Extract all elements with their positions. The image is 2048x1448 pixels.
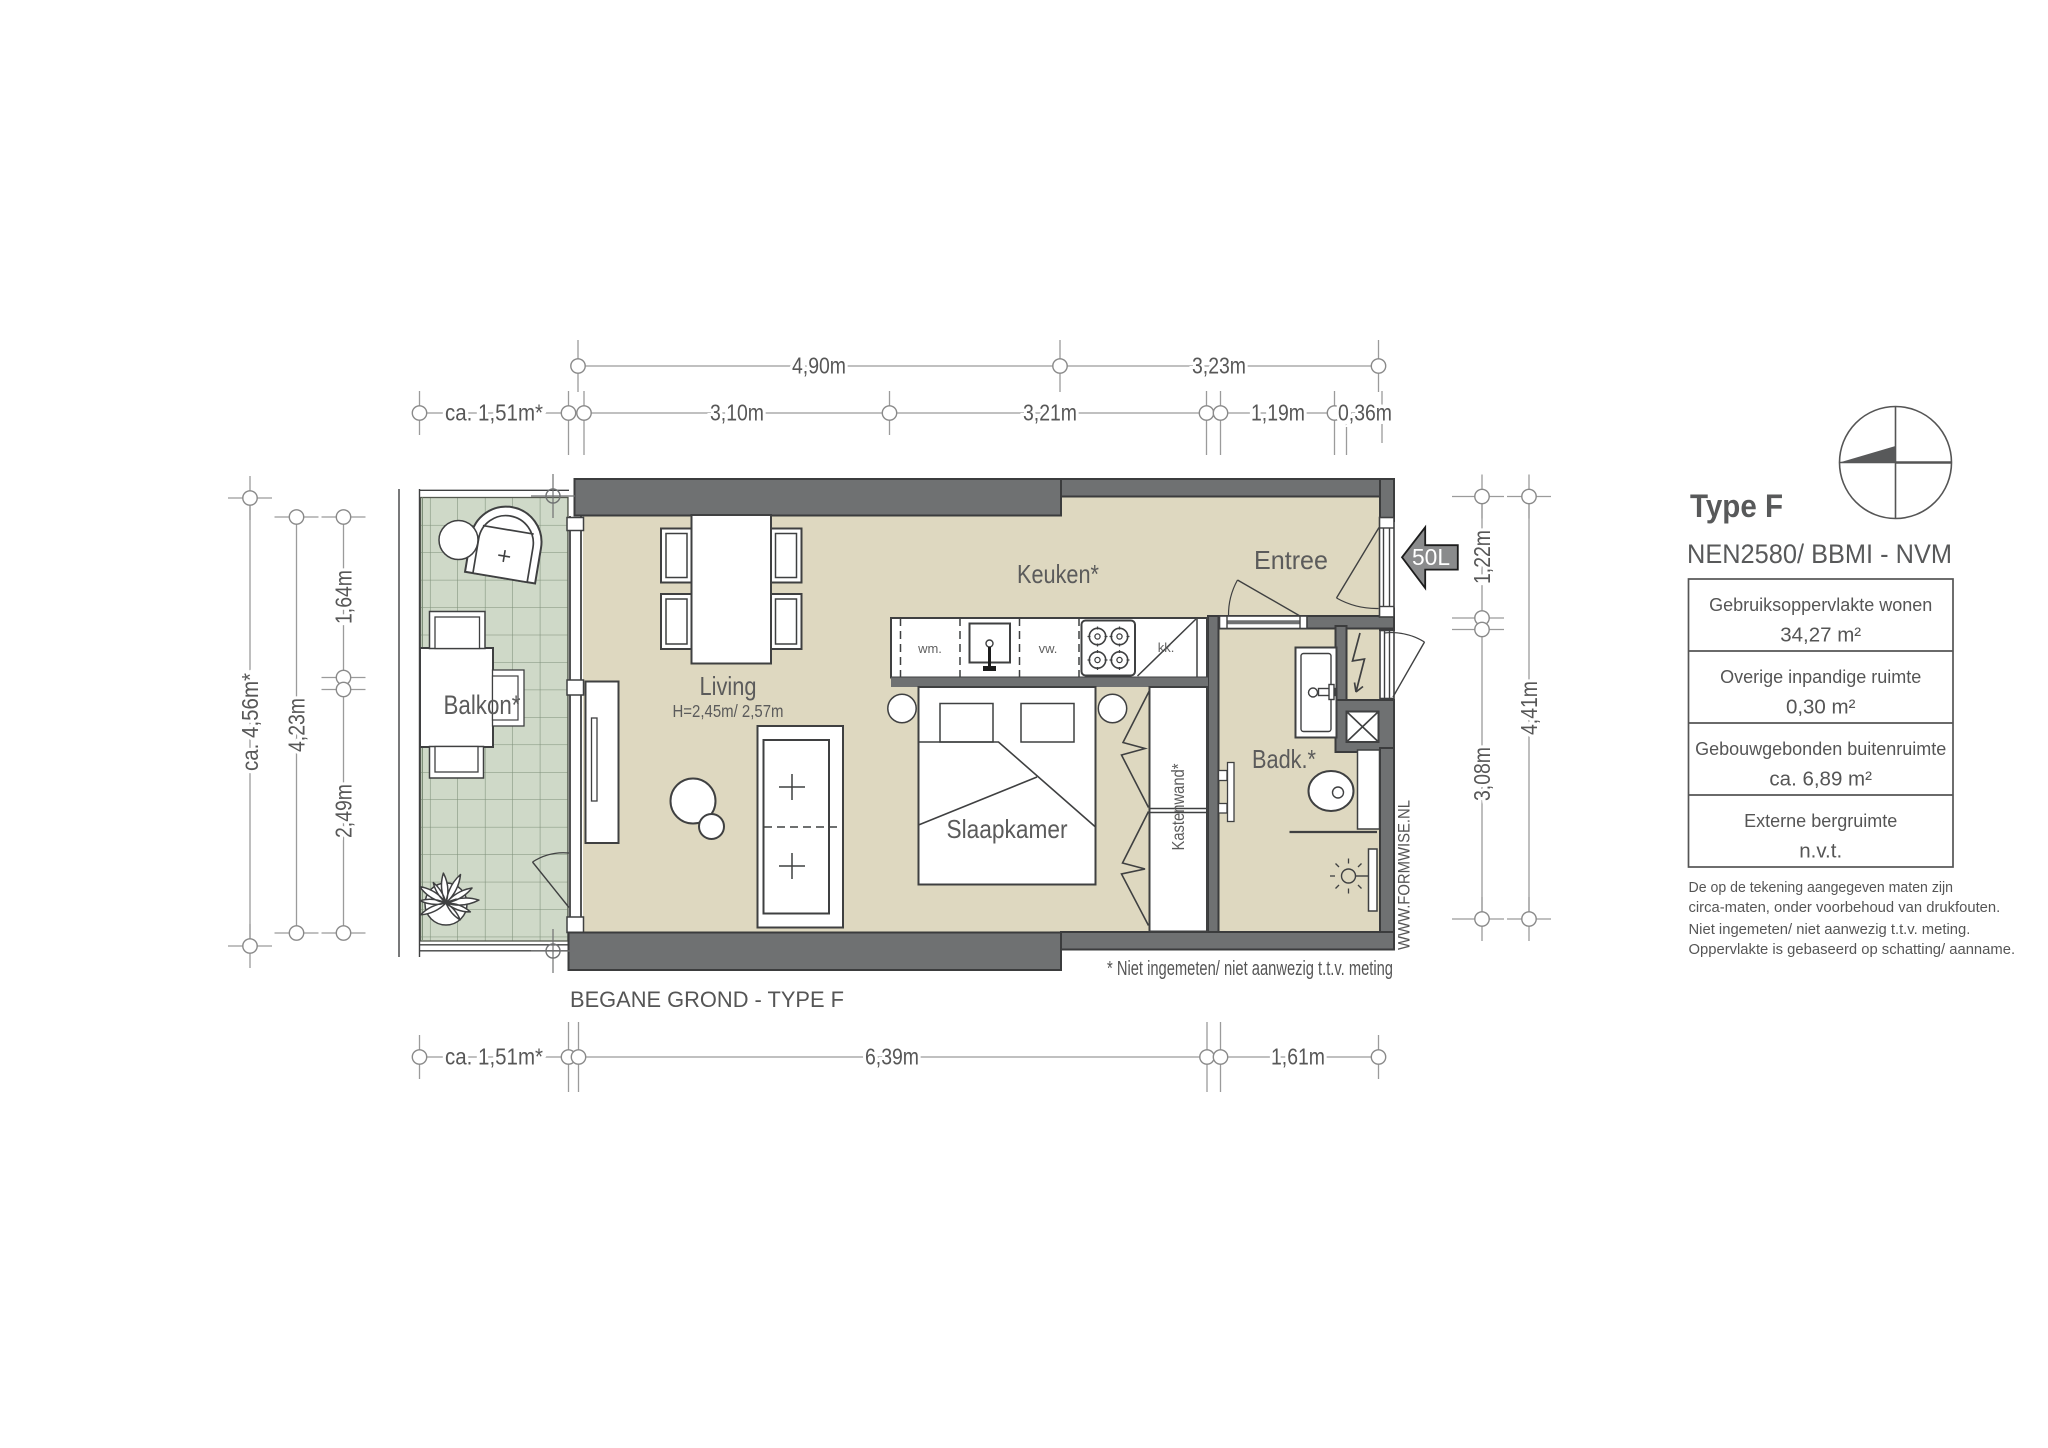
svg-text:Gebouwgebonden buitenruimte: Gebouwgebonden buitenruimte	[1695, 739, 1946, 759]
svg-text:kk.: kk.	[1158, 640, 1175, 655]
svg-text:vw.: vw.	[1039, 641, 1058, 656]
svg-text:34,27 m²: 34,27 m²	[1780, 624, 1861, 647]
svg-text:Type F: Type F	[1690, 488, 1783, 524]
svg-text:NEN2580/ BBMI - NVM: NEN2580/ BBMI - NVM	[1687, 539, 1952, 569]
svg-text:1,61m: 1,61m	[1271, 1044, 1325, 1070]
svg-text:H=2,45m/ 2,57m: H=2,45m/ 2,57m	[673, 701, 784, 721]
svg-text:circa-maten, onder voorbehoud: circa-maten, onder voorbehoud van drukfo…	[1689, 900, 2001, 916]
svg-text:Externe bergruimte: Externe bergruimte	[1744, 811, 1897, 831]
svg-text:ca. 6,89 m²: ca. 6,89 m²	[1769, 768, 1872, 791]
svg-text:4,41m: 4,41m	[1516, 681, 1542, 735]
svg-text:1,22m: 1,22m	[1469, 530, 1495, 584]
svg-text:WWW.FORMWISE.NL: WWW.FORMWISE.NL	[1396, 800, 1414, 950]
svg-text:0,30 m²: 0,30 m²	[1786, 696, 1856, 719]
svg-text:3,08m: 3,08m	[1469, 747, 1495, 801]
svg-text:Oppervlakte is gebaseerd op sc: Oppervlakte is gebaseerd op schatting/ a…	[1689, 942, 2016, 958]
svg-text:6,39m: 6,39m	[865, 1044, 919, 1070]
svg-text:ca. 4,56m*: ca. 4,56m*	[237, 673, 263, 771]
svg-text:Keuken*: Keuken*	[1017, 559, 1099, 589]
svg-text:Slaapkamer: Slaapkamer	[947, 814, 1068, 844]
svg-text:1,19m: 1,19m	[1251, 400, 1305, 426]
svg-text:wm.: wm.	[917, 641, 942, 656]
svg-text:3,21m: 3,21m	[1023, 400, 1077, 426]
svg-text:1,64m: 1,64m	[331, 570, 357, 624]
svg-text:n.v.t.: n.v.t.	[1799, 840, 1842, 863]
svg-text:4,90m: 4,90m	[792, 353, 846, 379]
svg-text:4,23m: 4,23m	[284, 698, 310, 752]
svg-text:* Niet ingemeten/ niet aanwezi: * Niet ingemeten/ niet aanwezig t.t.v. m…	[1107, 958, 1393, 980]
svg-text:50L: 50L	[1412, 544, 1450, 570]
svg-text:0,36m: 0,36m	[1338, 400, 1392, 426]
svg-text:Gebruiksoppervlakte wonen: Gebruiksoppervlakte wonen	[1709, 595, 1932, 615]
svg-text:3,23m: 3,23m	[1192, 353, 1246, 379]
svg-text:De op de tekening aangegeven m: De op de tekening aangegeven maten zijn	[1689, 880, 1954, 896]
svg-text:2,49m: 2,49m	[331, 784, 357, 838]
svg-text:ca. 1,51m*: ca. 1,51m*	[445, 1044, 543, 1070]
svg-text:Living: Living	[700, 671, 757, 701]
svg-text:Balkon*: Balkon*	[444, 690, 521, 720]
svg-text:Niet ingemeten/ niet aanwezig: Niet ingemeten/ niet aanwezig t.t.v. met…	[1689, 922, 1971, 938]
svg-text:Entree: Entree	[1254, 545, 1328, 575]
svg-text:Kastenwand*: Kastenwand*	[1168, 763, 1188, 850]
svg-text:Badk.*: Badk.*	[1252, 744, 1316, 774]
svg-text:ca. 1,51m*: ca. 1,51m*	[445, 400, 543, 426]
svg-text:BEGANE GROND - TYPE F: BEGANE GROND - TYPE F	[570, 987, 844, 1012]
svg-text:3,10m: 3,10m	[710, 400, 764, 426]
svg-text:Overige inpandige ruimte: Overige inpandige ruimte	[1720, 667, 1921, 687]
